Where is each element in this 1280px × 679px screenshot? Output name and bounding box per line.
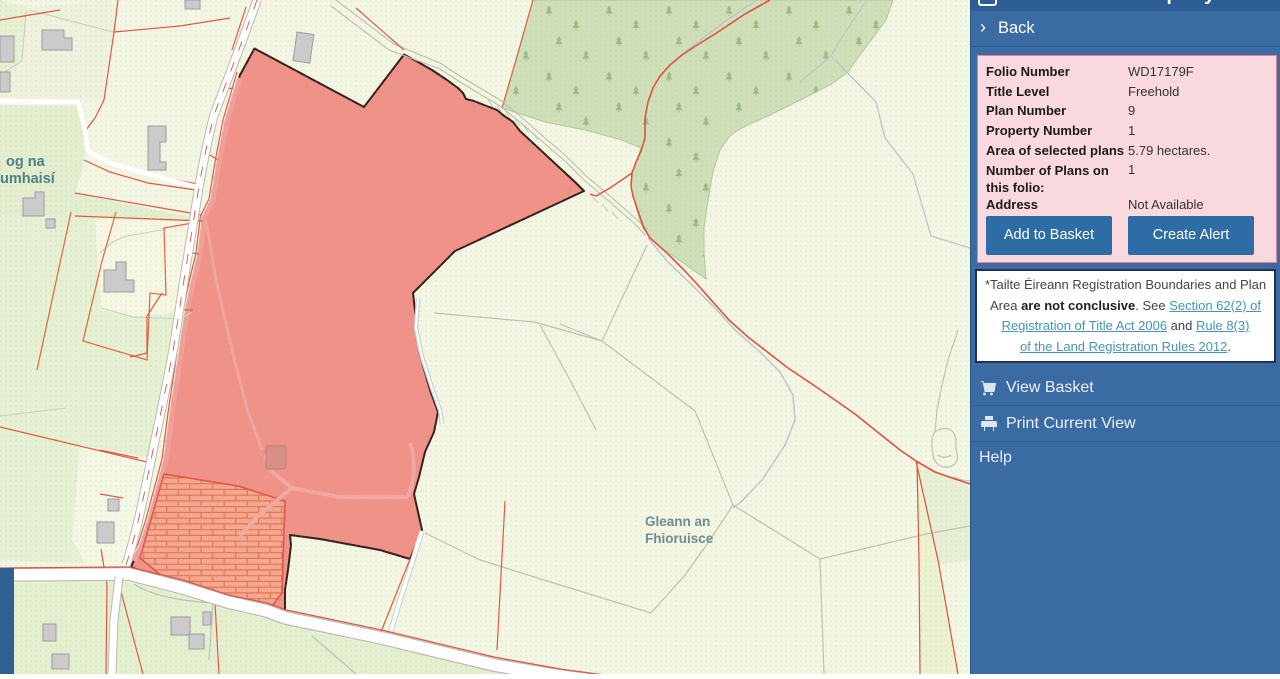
- svg-text:Fhioruisce: Fhioruisce: [645, 531, 714, 546]
- svg-text:Gleann an: Gleann an: [645, 514, 710, 529]
- svg-text:og na: og na: [6, 154, 46, 170]
- svg-text:umhaisí: umhaisí: [0, 171, 56, 187]
